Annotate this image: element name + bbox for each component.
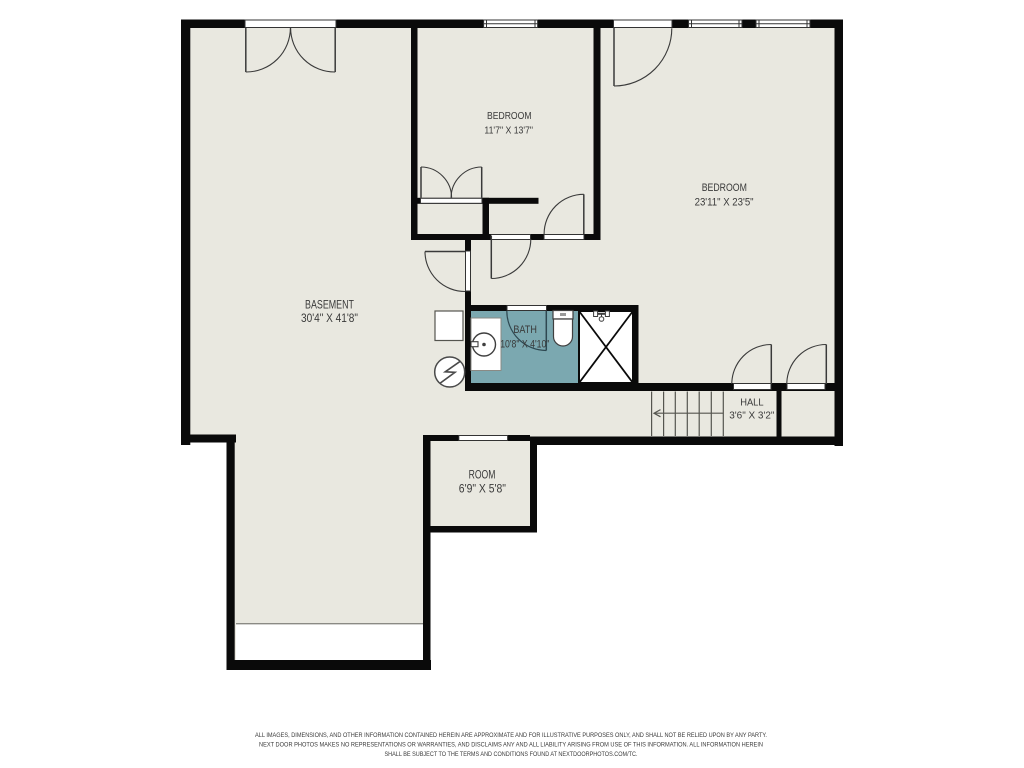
svg-text:SHALL BE SUBJECT TO THE TERMS: SHALL BE SUBJECT TO THE TERMS AND CONDIT…: [385, 752, 638, 758]
svg-text:ROOM: ROOM: [469, 470, 496, 482]
svg-text:30'4" X 41'8": 30'4" X 41'8": [301, 313, 358, 325]
svg-text:10'8" X 4'10": 10'8" X 4'10": [500, 339, 549, 351]
svg-text:BEDROOM: BEDROOM: [487, 111, 532, 122]
svg-text:BATH: BATH: [513, 324, 537, 336]
svg-text:23'11" X 23'5": 23'11" X 23'5": [695, 196, 754, 208]
svg-text:ALL IMAGES, DIMENSIONS, AND OT: ALL IMAGES, DIMENSIONS, AND OTHER INFORM…: [255, 733, 767, 739]
svg-text:11'7" X 13'7": 11'7" X 13'7": [484, 125, 533, 136]
svg-text:BASEMENT: BASEMENT: [305, 299, 354, 311]
svg-text:3'6" X 3'2": 3'6" X 3'2": [729, 410, 775, 422]
svg-text:NEXT DOOR PHOTOS MAKES NO REPR: NEXT DOOR PHOTOS MAKES NO REPRESENTATION…: [259, 743, 763, 749]
svg-text:6'9" X 5'8": 6'9" X 5'8": [459, 483, 506, 495]
svg-text:HALL: HALL: [740, 396, 764, 408]
svg-text:BEDROOM: BEDROOM: [702, 182, 747, 194]
